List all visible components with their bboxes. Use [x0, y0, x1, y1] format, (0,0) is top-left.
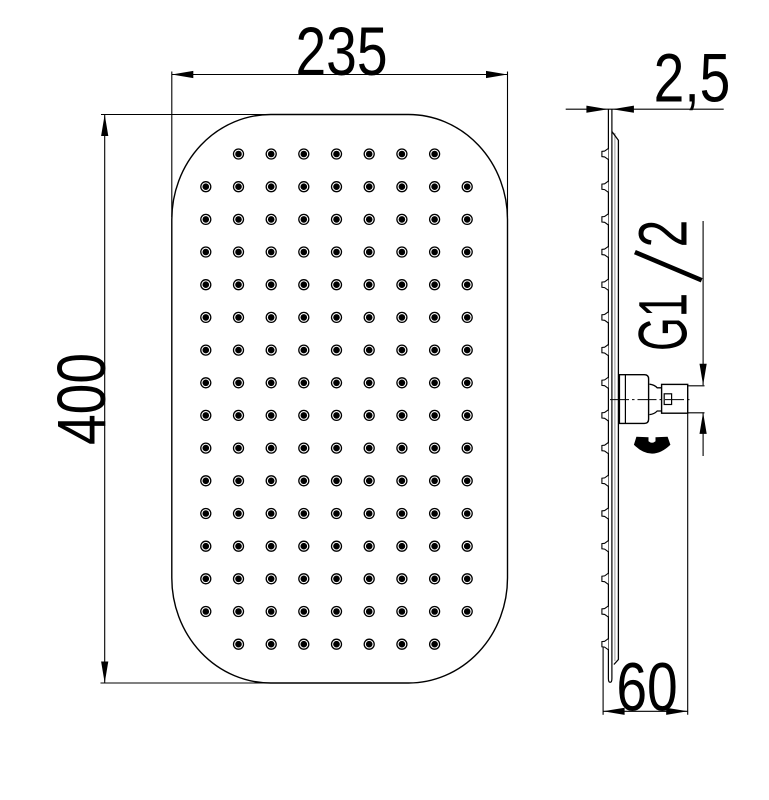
- svg-text:2,5: 2,5: [654, 40, 731, 117]
- svg-text:60: 60: [616, 649, 677, 726]
- svg-text:G1: G1: [625, 293, 702, 351]
- svg-text:235: 235: [295, 13, 387, 90]
- svg-text:400: 400: [43, 353, 120, 445]
- svg-text:2: 2: [625, 220, 702, 248]
